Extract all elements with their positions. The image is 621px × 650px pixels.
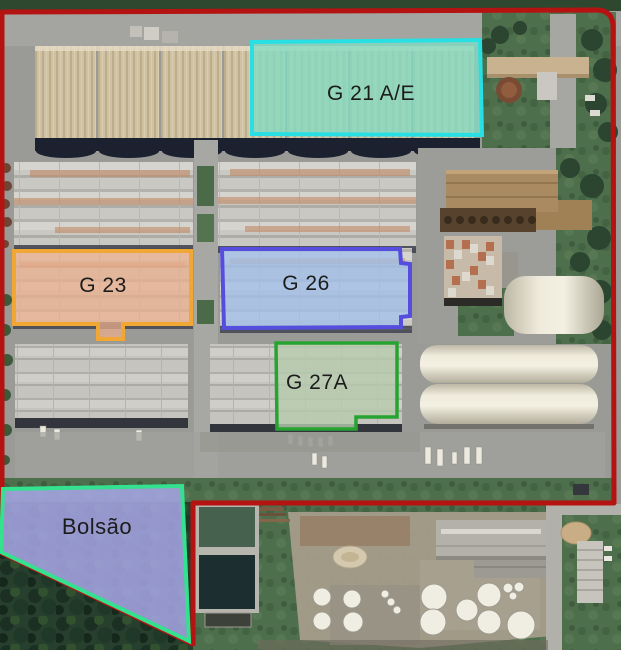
- plant-building: [436, 520, 546, 560]
- region-g23-label: G 23: [79, 274, 127, 297]
- dome-warehouse-small: [504, 276, 604, 334]
- treatment-pool-2: [199, 555, 255, 609]
- top-right-grounds: [480, 12, 618, 148]
- aerial-map-view: G 21 A/E G 23 G 26 G 27A Bolsão: [0, 0, 621, 650]
- region-g26-label: G 26: [282, 272, 330, 295]
- barrel-warehouse-1: [420, 345, 598, 383]
- treatment-pool-1: [199, 507, 255, 547]
- barrel-warehouse-2: [420, 384, 598, 424]
- region-g21ae-label: G 21 A/E: [327, 82, 415, 105]
- region-bolsao-label: Bolsão: [62, 514, 132, 539]
- satellite-canvas: G 21 A/E G 23 G 26 G 27A Bolsão: [0, 0, 621, 650]
- region-g27a-label: G 27A: [286, 371, 348, 394]
- right-industrial-area: [418, 148, 616, 344]
